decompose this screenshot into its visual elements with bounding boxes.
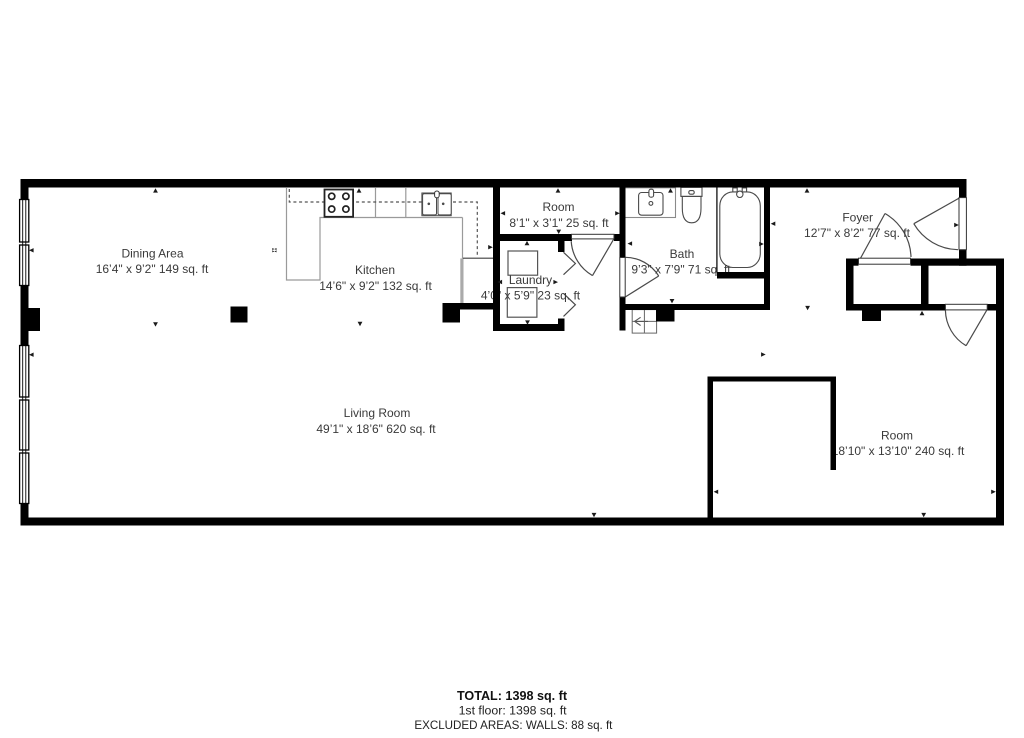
svg-text:Living Room: Living Room <box>344 406 411 420</box>
svg-text:Kitchen: Kitchen <box>355 263 395 277</box>
svg-text:Room: Room <box>881 429 913 443</box>
svg-text:EXCLUDED AREAS: WALLS: 88 sq.: EXCLUDED AREAS: WALLS: 88 sq. ft <box>414 719 613 732</box>
svg-text:18’10" x 13’10" 240 sq. ft: 18’10" x 13’10" 240 sq. ft <box>832 444 965 458</box>
svg-text:Foyer: Foyer <box>842 211 873 225</box>
svg-text:16’4" x 9’2" 149 sq. ft: 16’4" x 9’2" 149 sq. ft <box>96 262 209 276</box>
svg-text:Bath: Bath <box>670 247 695 261</box>
svg-text:TOTAL: 1398 sq. ft: TOTAL: 1398 sq. ft <box>457 689 568 703</box>
svg-text:49’1" x 18’6" 620 sq. ft: 49’1" x 18’6" 620 sq. ft <box>316 422 436 436</box>
svg-text:1st floor: 1398 sq. ft: 1st floor: 1398 sq. ft <box>459 703 568 717</box>
svg-text:12’7" x 8’2" 77 sq. ft: 12’7" x 8’2" 77 sq. ft <box>804 226 911 240</box>
svg-text:Room: Room <box>542 200 574 214</box>
svg-text:Laundry: Laundry <box>509 273 552 287</box>
svg-text:14’6" x 9’2" 132 sq. ft: 14’6" x 9’2" 132 sq. ft <box>319 279 432 293</box>
svg-text:Dining Area: Dining Area <box>121 246 183 260</box>
svg-text:9’3" x 7’9" 71 sq. ft: 9’3" x 7’9" 71 sq. ft <box>631 263 731 277</box>
svg-text:8’1" x 3’1" 25 sq. ft: 8’1" x 3’1" 25 sq. ft <box>509 216 609 230</box>
